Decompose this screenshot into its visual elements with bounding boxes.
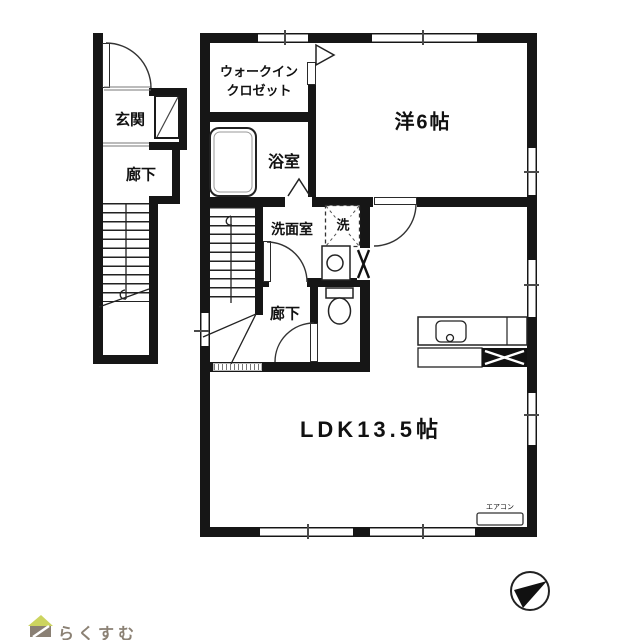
room-label-wic: ウォークイン クロゼット — [220, 62, 298, 100]
floorplan-canvas: 玄関 廊下 ウォークイン クロゼット 浴室 洗面室 洗 廊下 洋6帖 LDK13… — [0, 0, 640, 640]
closet-door-leaf — [307, 62, 316, 85]
wall — [149, 196, 180, 204]
front-door-leaf — [102, 43, 110, 88]
stairs-ldk-opening — [213, 363, 262, 371]
window — [372, 34, 477, 42]
faucet-icon — [447, 335, 454, 342]
kitchen-counter — [418, 317, 527, 367]
wall — [200, 33, 210, 537]
room-label-washroom: 洗面室 — [271, 219, 313, 239]
wall — [149, 142, 187, 150]
washroom-door-opening — [269, 278, 307, 287]
wall — [149, 196, 158, 364]
staircase-main — [210, 207, 255, 305]
window-tick — [284, 30, 286, 45]
compass-icon — [511, 572, 549, 610]
toilet-door-leaf — [310, 323, 318, 362]
shoe-cabinet — [154, 95, 180, 139]
wall — [255, 197, 263, 315]
bath-folding-door-icon — [288, 179, 310, 196]
logo-house-icon — [28, 615, 53, 637]
wic-line1: ウォークイン — [220, 62, 298, 81]
window — [258, 34, 308, 42]
wall — [200, 33, 537, 43]
wall — [310, 287, 318, 323]
window-tick — [307, 524, 309, 539]
bedroom-door-leaf — [374, 197, 417, 205]
closet-door-triangle — [316, 45, 334, 65]
window-tick — [524, 414, 539, 416]
room-label-ldk: LDK13.5帖 — [300, 412, 442, 444]
bathtub-icon — [210, 128, 256, 196]
staircase-entrance — [103, 203, 149, 302]
window-tick — [422, 30, 424, 45]
room-label-corridor-2f: 廊下 — [270, 303, 300, 324]
room-label-genkan: 玄関 — [115, 109, 145, 130]
sink-icon — [436, 321, 466, 342]
label-aircon: エアコン — [486, 502, 514, 512]
room-label-bath: 浴室 — [268, 148, 300, 172]
logo-text: らくすむ — [58, 620, 138, 640]
room-label-corridor-1f: 廊下 — [126, 164, 156, 185]
wall — [200, 112, 316, 122]
wic-line2: クロゼット — [220, 81, 298, 100]
pipe-space-inset — [357, 248, 370, 280]
toilet-icon — [326, 288, 353, 324]
window — [528, 260, 536, 317]
window-tick — [422, 524, 424, 539]
washbasin-icon — [322, 246, 350, 280]
range-space-icon — [482, 348, 527, 367]
aircon-box — [477, 513, 523, 525]
wall — [308, 84, 316, 197]
window-tick — [524, 284, 539, 286]
wall — [179, 88, 187, 150]
washroom-door-leaf — [263, 241, 271, 282]
window — [528, 393, 536, 445]
bath-door-opening — [285, 197, 312, 207]
window-tick — [194, 330, 209, 332]
label-laundry: 洗 — [335, 215, 350, 234]
window-tick — [524, 171, 539, 173]
wall — [200, 527, 537, 537]
room-label-western-room: 洋6帖 — [394, 106, 451, 135]
